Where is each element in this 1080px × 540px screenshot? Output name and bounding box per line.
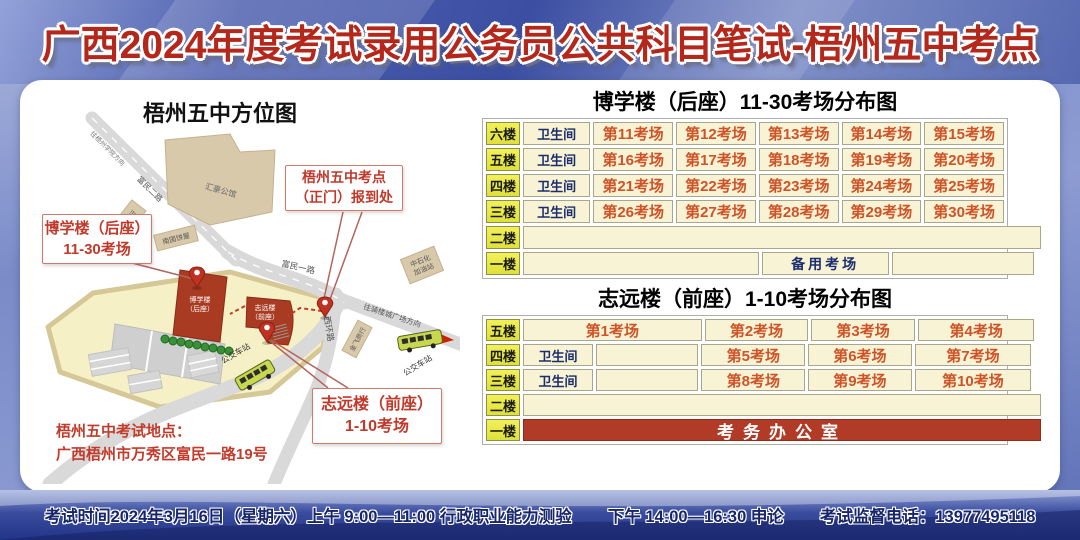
exam-office-cell: 考务办公室 (523, 419, 1041, 441)
washroom-cell: 卫生间 (523, 200, 590, 223)
table-row: 二楼 (486, 226, 1004, 249)
table-row: 六楼卫生间第11考场第12考场第13考场第14考场第15考场 (486, 122, 1004, 145)
exam-room-cell: 第16考场 (593, 148, 673, 171)
exam-room-cell: 第28考场 (759, 200, 839, 223)
empty-cell (892, 252, 1034, 275)
exam-room-cell: 第30考场 (924, 200, 1004, 223)
exam-time: 考试时间2024年3月16日（星期六）上午 9:00—11:00 行政职业能力测… (45, 503, 572, 527)
exam-afternoon: 下午 14:00—16:30 申论 (608, 503, 784, 527)
exam-address: 梧州五中考试地点： 广西梧州市万秀区富民一路19号 (56, 420, 268, 466)
exam-room-cell: 第1考场 (523, 319, 702, 341)
empty-cell (523, 226, 1041, 249)
zhiyuan-callout-line2: 1-10考场 (313, 416, 441, 438)
table-row: 二楼 (486, 394, 1004, 416)
table-row: 一楼备用考场 (486, 252, 1004, 275)
exam-room-cell: 第7考场 (915, 344, 1032, 366)
washroom-cell: 卫生间 (523, 369, 593, 391)
washroom-cell: 卫生间 (523, 174, 590, 197)
exam-room-cell: 第4考场 (918, 319, 1035, 341)
floor-label: 四楼 (486, 174, 520, 197)
seat-table: 六楼卫生间第11考场第12考场第13考场第14考场第15考场五楼卫生间第16考场… (482, 118, 1008, 279)
footer-text: 考试时间2024年3月16日（星期六）上午 9:00—11:00 行政职业能力测… (0, 490, 1080, 540)
exam-room-cell: 第18考场 (759, 148, 839, 171)
seat-distribution-tables: 博学楼（后座）11-30考场分布图六楼卫生间第11考场第12考场第13考场第14… (482, 88, 1008, 451)
empty-cell (523, 394, 1041, 416)
floor-label: 五楼 (486, 148, 520, 171)
exam-room-cell: 第10考场 (915, 369, 1032, 391)
zhiyuan-callout-line1: 志远楼（前座） (313, 394, 441, 416)
section-title: 博学楼（后座）11-30考场分布图 (482, 88, 1008, 118)
exam-room-cell: 第12考场 (676, 122, 756, 145)
exam-room-cell: 第15考场 (924, 122, 1004, 145)
supervision-phone: 考试监督电话：13977495118 (820, 503, 1036, 527)
exam-room-cell: 第24考场 (842, 174, 922, 197)
exam-room-cell: 第2考场 (705, 319, 809, 341)
table-row: 一楼考务办公室 (486, 419, 1004, 441)
floor-label: 六楼 (486, 122, 520, 145)
table-row: 三楼卫生间第8考场第9考场第10考场 (486, 369, 1004, 391)
exam-room-cell: 第20考场 (924, 148, 1004, 171)
floor-label: 一楼 (486, 252, 520, 275)
exam-room-cell: 第23考场 (759, 174, 839, 197)
exam-room-cell: 第6考场 (808, 344, 912, 366)
exam-room-cell: 第17考场 (676, 148, 756, 171)
zhiyuan-building-label: 志远楼 (255, 303, 276, 312)
location-map: 博学楼 （后座） 志远楼 （前座） 汇豪公馆 桂林银行 南国饼屋 中石化 加油站… (40, 92, 460, 484)
exam-room-cell: 第14考场 (842, 122, 922, 145)
boxue-callout-line2: 11-30考场 (43, 239, 151, 260)
seat-table: 五楼第1考场第2考场第3考场第4考场四楼卫生间第5考场第6考场第7考场三楼卫生间… (482, 315, 1008, 445)
bus-icon-2 (397, 329, 443, 354)
gate-callout-line1: 梧州五中考点 (286, 168, 402, 188)
floor-label: 一楼 (486, 419, 520, 441)
map-title: 梧州五中方位图 (40, 96, 400, 128)
table-row: 三楼卫生间第26考场第27考场第28考场第29考场第30考场 (486, 200, 1004, 223)
floor-label: 三楼 (486, 369, 520, 391)
gate-callout: 梧州五中考点 （正门）报到处 (285, 165, 403, 211)
washroom-cell: 卫生间 (523, 148, 590, 171)
floor-label: 二楼 (486, 394, 520, 416)
table-row: 五楼第1考场第2考场第3考场第4考场 (486, 319, 1004, 341)
table-row: 四楼卫生间第21考场第22考场第23考场第24考场第25考场 (486, 174, 1004, 197)
exam-room-cell: 第8考场 (701, 369, 805, 391)
exam-address-text: 广西梧州市万秀区富民一路19号 (56, 443, 268, 466)
boxue-callout-line1: 博学楼（后座） (43, 218, 151, 239)
empty-cell (523, 252, 759, 275)
exam-room-cell: 第21考场 (593, 174, 673, 197)
page-title: 广西2024年度考试录用公务员公共科目笔试-梧州五中考点 (42, 14, 1039, 70)
footer-bar: 考试时间2024年3月16日（星期六）上午 9:00—11:00 行政职业能力测… (0, 490, 1080, 540)
gate-callout-line2: （正门）报到处 (286, 188, 402, 208)
zhiyuan-callout: 志远楼（前座） 1-10考场 (312, 388, 442, 444)
exam-room-cell: 第26考场 (593, 200, 673, 223)
exam-room-cell: 第13考场 (759, 122, 839, 145)
exam-room-cell: 第9考场 (808, 369, 912, 391)
boxue-callout: 博学楼（后座） 11-30考场 (42, 214, 152, 264)
exam-room-cell: 第3考场 (811, 319, 915, 341)
table-row: 五楼卫生间第16考场第17考场第18考场第19考场第20考场 (486, 148, 1004, 171)
exam-room-cell: 第22考场 (676, 174, 756, 197)
exam-room-cell: 第27考场 (676, 200, 756, 223)
floor-label: 五楼 (486, 319, 520, 341)
poster: 广西2024年度考试录用公务员公共科目笔试-梧州五中考点 (0, 0, 1080, 540)
zhiyuan-building-label2: （前座） (251, 312, 279, 321)
boxue-building-label: 博学楼 (190, 295, 211, 304)
exam-room-cell: 第29考场 (842, 200, 922, 223)
empty-cell (596, 344, 699, 366)
exam-room-cell: 第5考场 (701, 344, 805, 366)
empty-cell (596, 369, 699, 391)
exam-room-cell: 第25考场 (924, 174, 1004, 197)
floor-label: 三楼 (486, 200, 520, 223)
gas-station-building (400, 246, 443, 284)
exam-room-cell: 第19考场 (842, 148, 922, 171)
washroom-cell: 卫生间 (523, 344, 593, 366)
bus-stop-label-2: 公交车站 (401, 352, 433, 377)
table-row: 四楼卫生间第5考场第6考场第7考场 (486, 344, 1004, 366)
section-title: 志远楼（前座）1-10考场分布图 (482, 285, 1008, 315)
reserve-room-cell: 备用考场 (762, 252, 889, 275)
banner: 广西2024年度考试录用公务员公共科目笔试-梧州五中考点 (0, 0, 1080, 84)
exam-address-title: 梧州五中考试地点： (56, 420, 268, 443)
exam-room-cell: 第11考场 (593, 122, 673, 145)
floor-label: 二楼 (486, 226, 520, 249)
washroom-cell: 卫生间 (523, 122, 590, 145)
floor-label: 四楼 (486, 344, 520, 366)
boxue-building-label2: （后座） (186, 304, 214, 313)
